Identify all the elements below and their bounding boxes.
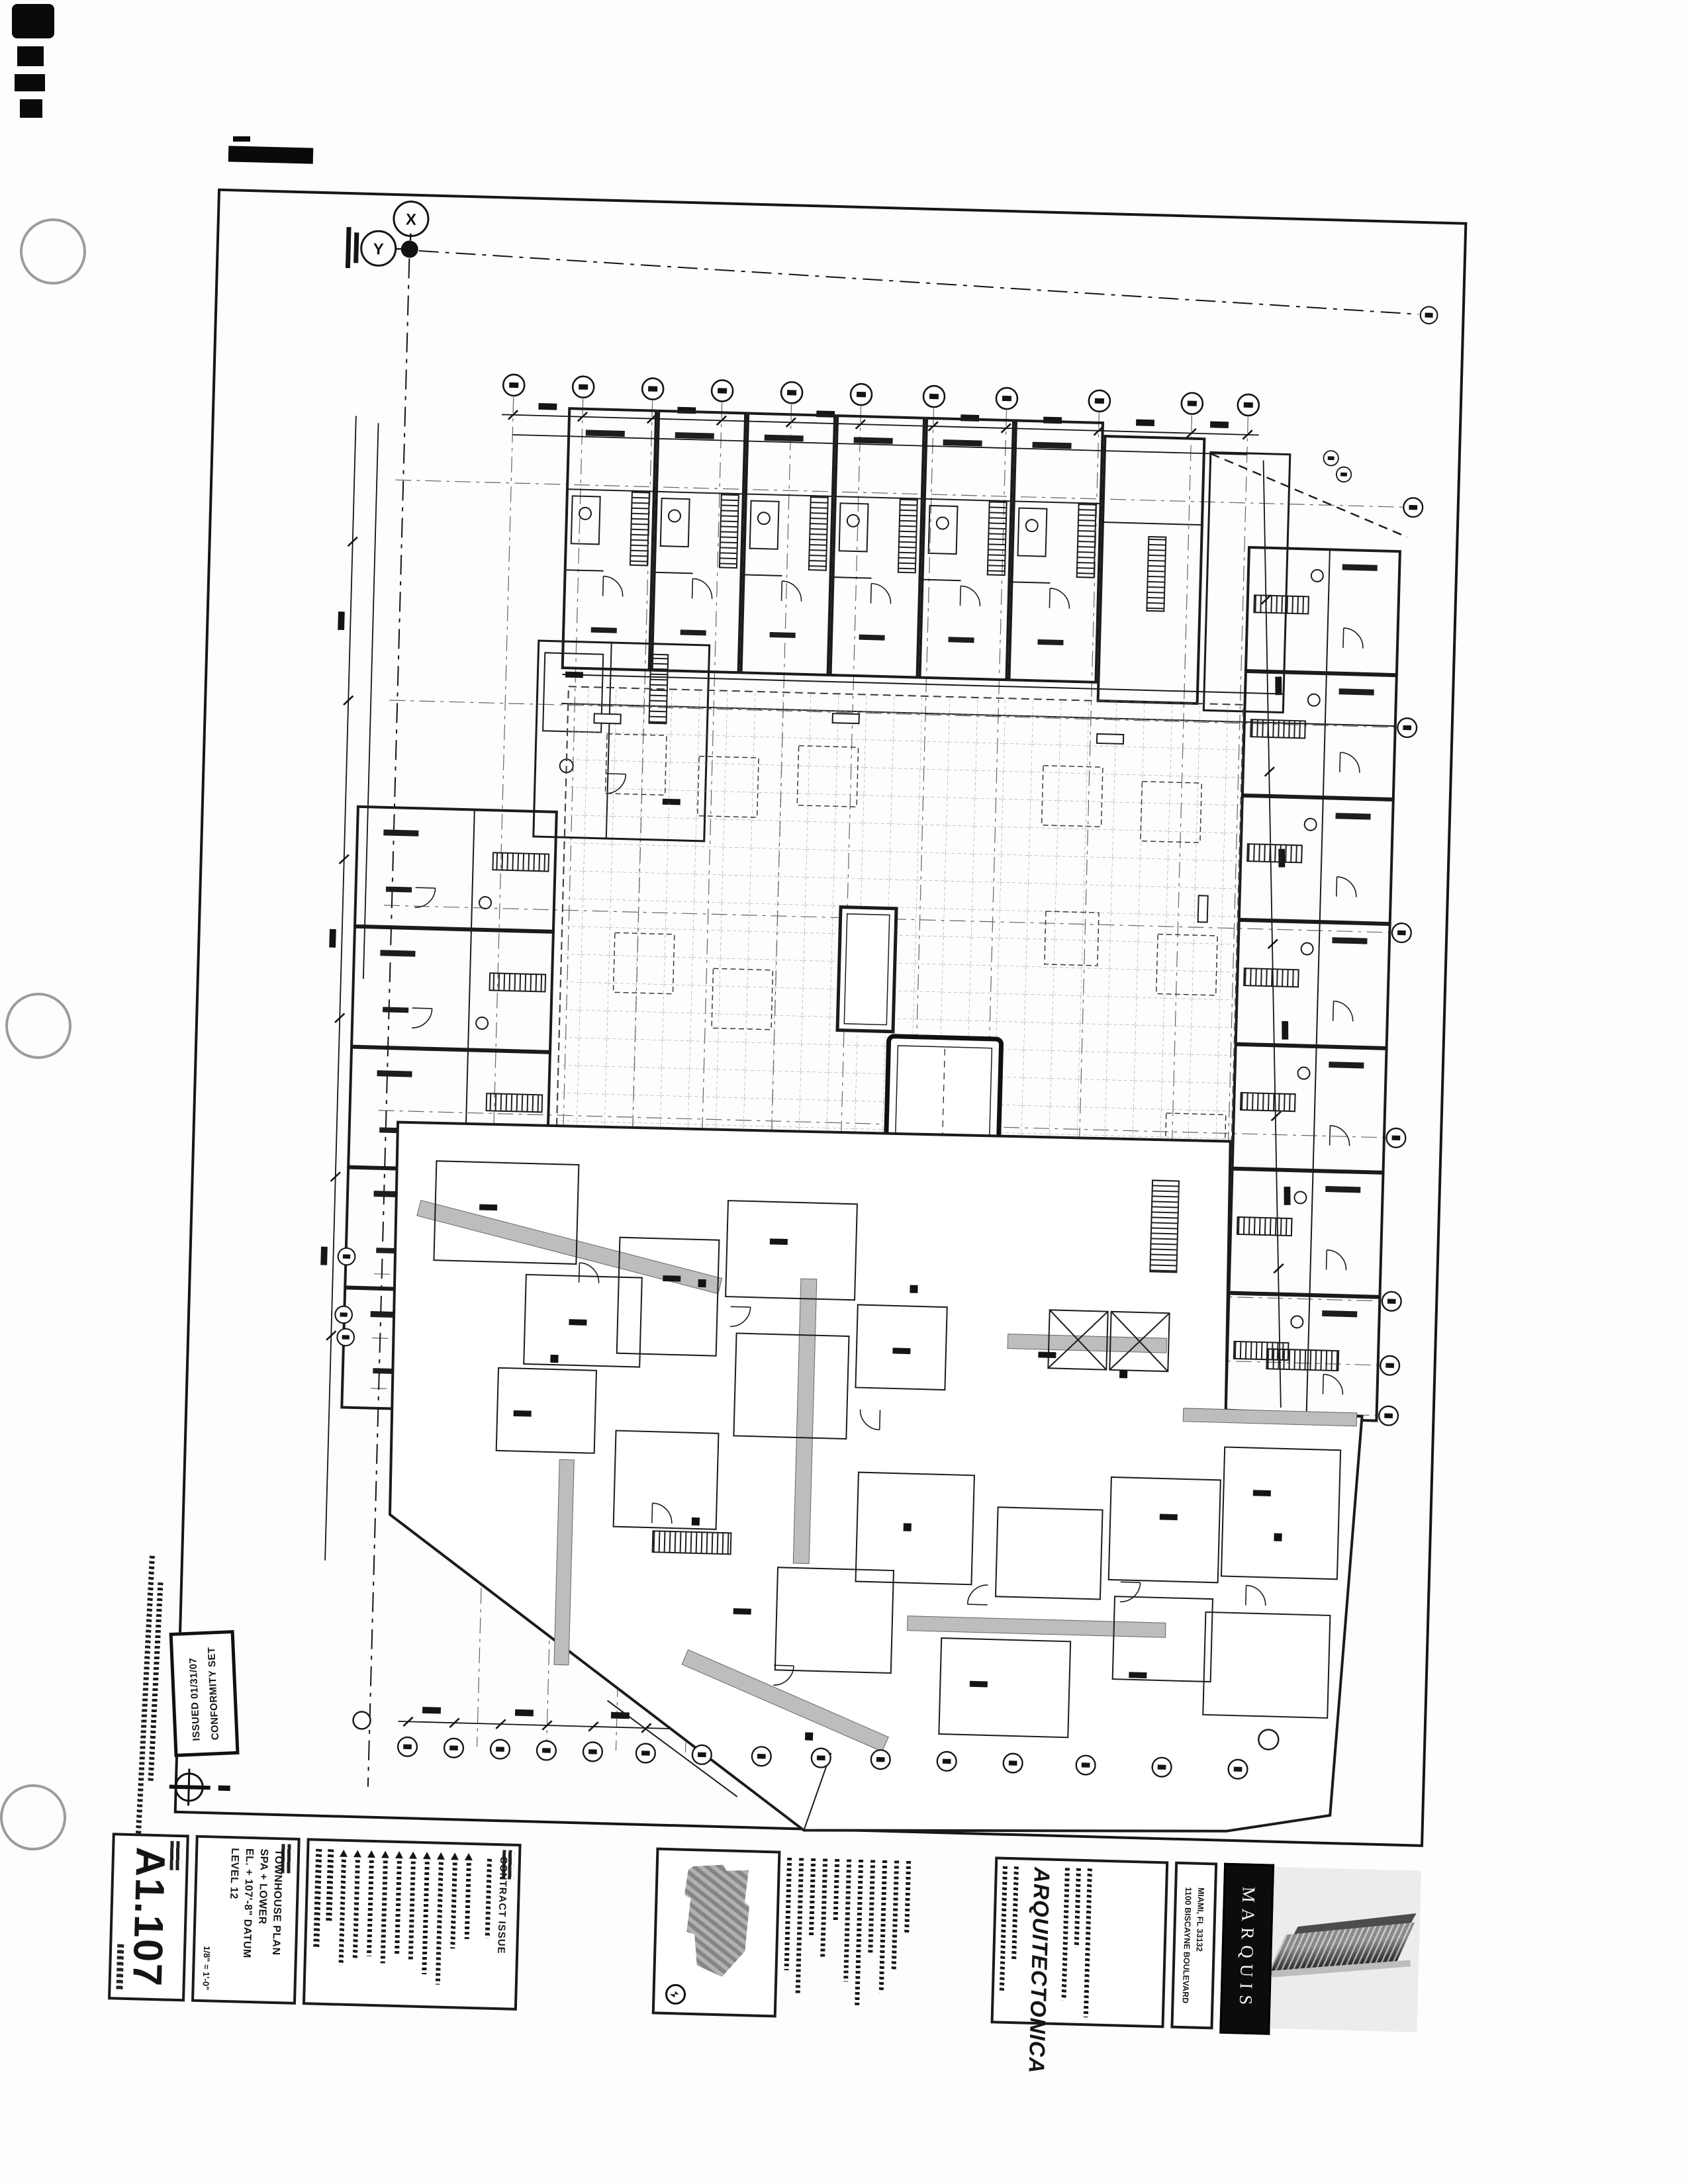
datum-origin-dot xyxy=(400,240,418,258)
scan-artifact xyxy=(15,74,45,91)
revision-entry xyxy=(313,1849,322,1948)
scan-artifact xyxy=(20,99,42,118)
sheet-scale: 1/8" = 1'-0" xyxy=(201,1946,212,1990)
sheet-title-box: LEVEL 12 EL. + 107'-8" DATUM SPA + LOWER… xyxy=(191,1835,301,2005)
project-address-line: 1100 BISCAYNE BOULEVARD xyxy=(1180,1887,1193,2003)
project-logo-box: MARQUIS xyxy=(1219,1863,1423,2035)
scan-artifact xyxy=(228,146,314,163)
sheet-title-line: SPA + LOWER xyxy=(255,1848,269,1958)
scan-artifact xyxy=(12,4,54,38)
sheet-number: A1.107 xyxy=(123,1846,174,1988)
project-address-line: MIAMI, FL 33132 xyxy=(1193,1888,1205,2004)
marquis-logo: MARQUIS xyxy=(1219,1863,1274,2035)
floor-plan-svg: X Y xyxy=(141,193,1442,1847)
spa-pool xyxy=(837,907,896,1032)
conformity-stamp: CONFORMITY SET ISSUED 01/31/07 xyxy=(169,1630,240,1757)
title-block-strip: A1.107 LEVEL 12 EL. + 107'-8" DATUM SPA … xyxy=(108,1833,1423,2034)
scan-artifact xyxy=(233,136,250,142)
drawing-sheet: X Y xyxy=(101,165,1476,2107)
townhouse-row-top xyxy=(561,408,1410,726)
spa-level-rooms xyxy=(351,1118,1370,1844)
revision-entry xyxy=(326,1849,334,1922)
consultants-box xyxy=(780,1851,992,2023)
architect-box: ARQUITECTONICA xyxy=(991,1856,1169,2028)
sheet-title-line: LEVEL 12 xyxy=(226,1848,240,1958)
stamp-line-2: ISSUED 01/31/07 xyxy=(183,1647,206,1741)
punch-hole xyxy=(20,218,86,285)
datum-y-label: Y xyxy=(373,240,384,258)
stamp-line-1: CONFORMITY SET xyxy=(203,1646,225,1740)
architect-firm-name: ARQUITECTONICA xyxy=(1024,1867,1055,2074)
datum-x-label: X xyxy=(406,210,417,228)
punch-hole xyxy=(0,1784,66,1850)
key-plan-footprint xyxy=(673,1860,755,1981)
alignment-target-icon xyxy=(174,1772,204,1802)
key-plan-box xyxy=(652,1848,781,2018)
sheet-title-line: EL. + 107'-8" DATUM xyxy=(240,1848,255,1958)
marquis-logo-text: MARQUIS xyxy=(1235,1887,1259,2011)
issue-label: CONTRACT ISSUE xyxy=(495,1856,509,1954)
issue-date-smudge xyxy=(485,1859,492,1938)
building-plan xyxy=(331,403,1410,1846)
sheet-title-line: TOWNHOUSE PLAN xyxy=(269,1849,284,1959)
project-address-box: 1100 BISCAYNE BOULEVARD MIAMI, FL 33132 xyxy=(1170,1862,1217,2030)
townhouse-row-right xyxy=(1225,547,1399,1421)
scanned-drawing-page: X Y xyxy=(0,0,1688,2184)
punch-hole xyxy=(5,993,71,1059)
sheet-number-box: A1.107 xyxy=(108,1833,189,2001)
sheet-number-footnote xyxy=(116,1944,124,1991)
north-arrow-icon xyxy=(664,1983,687,2006)
building-rendering xyxy=(1270,1867,1421,2032)
scan-artifact xyxy=(17,46,44,66)
revision-issue-box: CONTRACT ISSUE xyxy=(303,1838,522,2011)
